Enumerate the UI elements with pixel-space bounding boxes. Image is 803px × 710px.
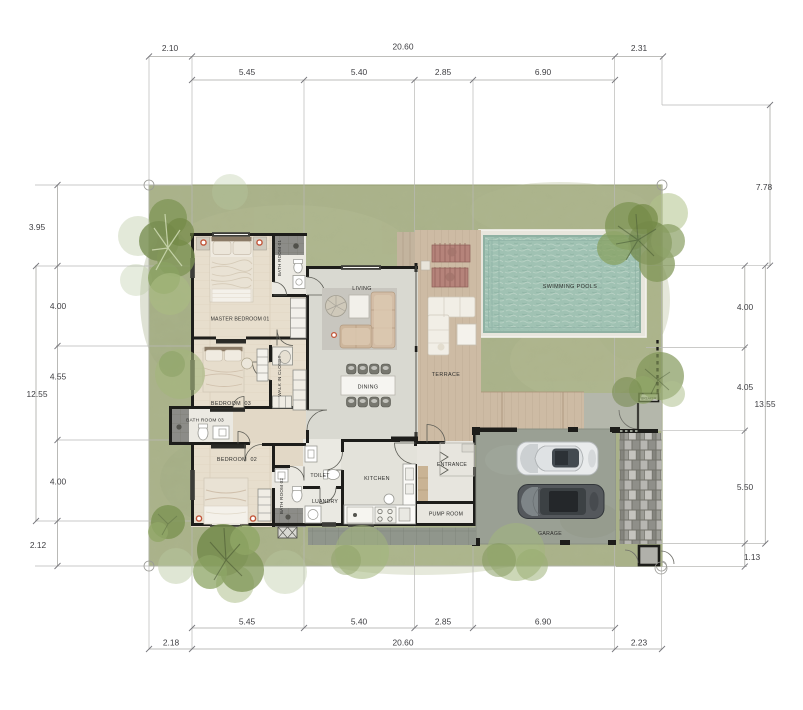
svg-text:13.55: 13.55 — [755, 399, 776, 409]
svg-text:LUANDRY: LUANDRY — [312, 499, 338, 505]
svg-text:WALK IN CLOSET: WALK IN CLOSET — [277, 355, 282, 396]
svg-text:3.95: 3.95 — [29, 222, 46, 232]
svg-text:TOILET: TOILET — [310, 473, 330, 479]
svg-text:2.31: 2.31 — [631, 43, 648, 53]
svg-text:GARAGE: GARAGE — [538, 531, 562, 537]
svg-text:TERRACE: TERRACE — [432, 372, 461, 378]
svg-text:ENTRANCE: ENTRANCE — [437, 462, 467, 468]
svg-text:20.60: 20.60 — [393, 42, 414, 52]
svg-text:BATH ROOM 01: BATH ROOM 01 — [277, 240, 282, 277]
svg-text:5.40: 5.40 — [351, 67, 368, 77]
svg-text:4.00: 4.00 — [50, 301, 67, 311]
svg-text:2.10: 2.10 — [162, 43, 179, 53]
svg-text:20.60: 20.60 — [393, 638, 414, 648]
svg-text:DINING: DINING — [358, 385, 379, 391]
svg-text:SWIMMING POOLS: SWIMMING POOLS — [543, 284, 597, 290]
svg-text:BEDROOM 03: BEDROOM 03 — [211, 401, 251, 407]
svg-text:4.05: 4.05 — [737, 382, 754, 392]
svg-text:BEDROOM 02: BEDROOM 02 — [217, 457, 257, 463]
svg-text:5.40: 5.40 — [351, 617, 368, 627]
svg-text:6.90: 6.90 — [535, 617, 552, 627]
svg-text:6.90: 6.90 — [535, 67, 552, 77]
svg-text:5.50: 5.50 — [737, 482, 754, 492]
svg-text:BATH ROOM 02: BATH ROOM 02 — [279, 478, 284, 515]
svg-text:MASTER BEDROOM 01: MASTER BEDROOM 01 — [211, 317, 270, 323]
svg-text:2.18: 2.18 — [163, 638, 180, 648]
svg-text:LIVING: LIVING — [352, 286, 371, 292]
svg-text:4.00: 4.00 — [737, 302, 754, 312]
svg-text:4.00: 4.00 — [50, 477, 67, 487]
svg-text:PUMP ROOM: PUMP ROOM — [429, 512, 463, 518]
svg-text:5.45: 5.45 — [239, 617, 256, 627]
svg-text:KITCHEN: KITCHEN — [364, 476, 390, 482]
svg-text:2.85: 2.85 — [435, 67, 452, 77]
svg-text:2.23: 2.23 — [631, 638, 648, 648]
svg-text:1.13: 1.13 — [744, 552, 761, 562]
svg-text:7.78: 7.78 — [756, 182, 773, 192]
svg-text:2.85: 2.85 — [435, 617, 452, 627]
svg-text:BATH ROOM 03: BATH ROOM 03 — [186, 418, 224, 424]
svg-text:12.55: 12.55 — [27, 389, 48, 399]
svg-text:5.45: 5.45 — [239, 67, 256, 77]
svg-text:2.12: 2.12 — [30, 540, 47, 550]
svg-text:4.55: 4.55 — [50, 372, 67, 382]
